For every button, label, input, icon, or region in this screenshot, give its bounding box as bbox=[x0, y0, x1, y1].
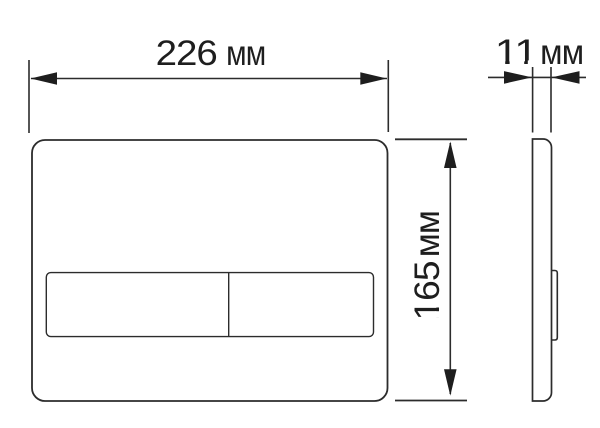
svg-text:226: 226 bbox=[156, 34, 217, 73]
svg-text:мм: мм bbox=[408, 211, 447, 257]
svg-text:мм: мм bbox=[226, 34, 265, 73]
svg-text:11: 11 bbox=[495, 34, 537, 73]
svg-text:165: 165 bbox=[407, 261, 447, 320]
svg-text:мм: мм bbox=[540, 33, 583, 72]
